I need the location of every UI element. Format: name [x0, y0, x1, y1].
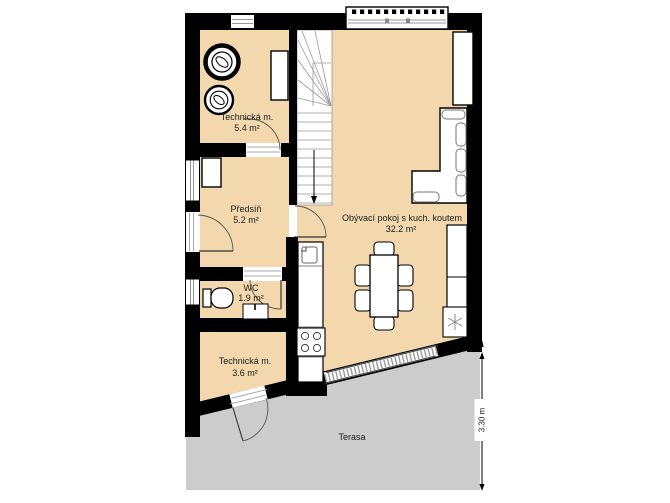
room-label-terasa: Terasa	[338, 432, 365, 442]
chair-icon	[374, 316, 394, 330]
room-label-technicka2-area: 3.6 m²	[232, 368, 258, 378]
chair-icon	[355, 265, 371, 286]
chair-icon	[355, 290, 371, 311]
wall-living-partition	[286, 237, 298, 387]
wall-wc-tech2	[185, 318, 296, 332]
sink-icon	[301, 247, 317, 263]
window-top-small	[231, 15, 254, 28]
wall-stair-partition	[289, 30, 297, 205]
cabinet-technicka	[271, 51, 288, 100]
wardrobe	[453, 32, 473, 105]
room-label-wc-name: WC	[244, 283, 259, 293]
toilet-icon	[203, 288, 233, 308]
chair-icon	[374, 242, 394, 256]
room-label-technicka1-area: 5.4 m²	[234, 123, 260, 133]
window-left-wc	[186, 277, 199, 307]
washbasin-icon	[243, 304, 268, 319]
washing-machine-icon	[206, 46, 239, 79]
room-label-wc-area: 1.9 m²	[238, 293, 264, 303]
room-label-living-name: Obývací pokoj s kuch. koutem	[342, 213, 462, 223]
room-label-predsin-name: Předsíň	[230, 204, 261, 214]
window-left-hall	[186, 158, 199, 203]
room-label-living-area: 32.2 m²	[386, 224, 417, 234]
kitchen-counter-left	[297, 242, 325, 382]
window-top-large	[346, 7, 448, 29]
room-label-technicka2-name: Technická m.	[219, 356, 272, 366]
room-label-predsin-area: 5.2 m²	[233, 215, 259, 225]
stove-icon	[297, 328, 325, 356]
kitchen-counter-right	[447, 225, 467, 308]
fridge-icon	[443, 307, 467, 337]
chair-icon	[397, 290, 413, 311]
floor-plan-drawing: 3.30 m Technická m. 5.4 m² Předsíň 5.2 m…	[0, 0, 670, 503]
dryer-icon	[205, 86, 233, 114]
dimension-label: 3.30 m	[478, 407, 487, 432]
room-label-technicka1-name: Technická m.	[221, 112, 274, 122]
cabinet-hall	[202, 158, 221, 187]
chair-icon	[397, 265, 413, 286]
table-top	[370, 255, 398, 317]
floor-plan: 3.30 m Technická m. 5.4 m² Předsíň 5.2 m…	[0, 0, 670, 503]
